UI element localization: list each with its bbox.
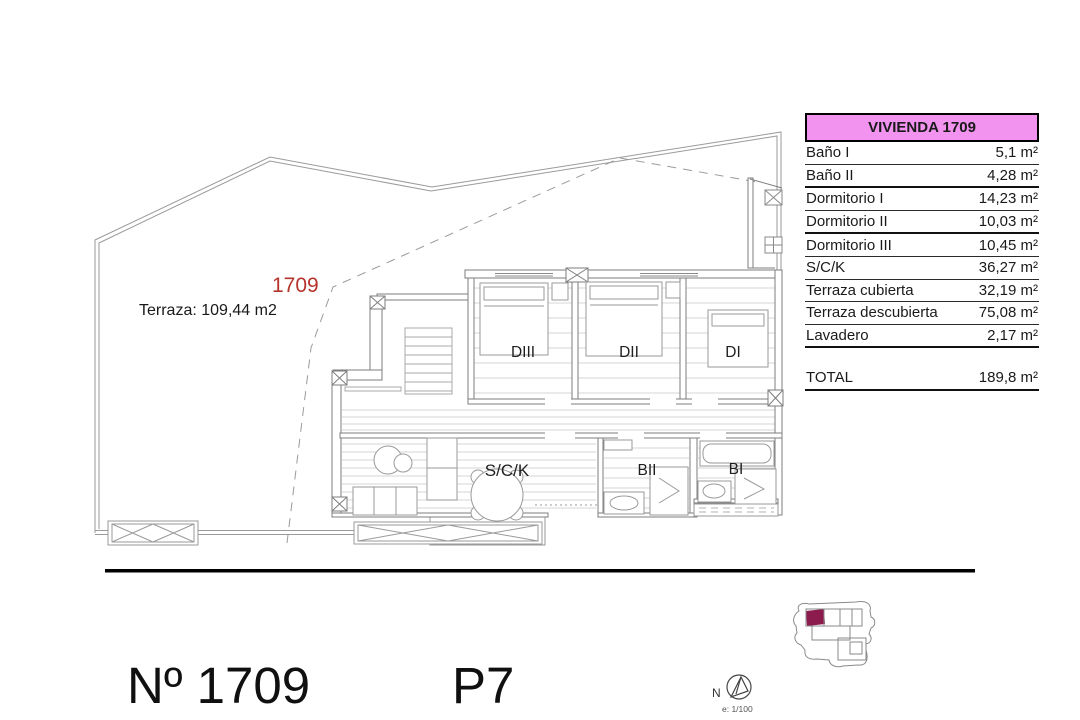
drawing-sheet: 1709 Terraza: 109,44 m2 DIII DII DI S/C/… [0,0,1080,720]
stairs [345,328,452,394]
area-table-row: Baño I 5,1 m² [805,142,1039,165]
room-label-bano-1: BI [729,461,744,479]
area-table-row: Dormitorio III 10,45 m² [805,234,1039,257]
terrace-area-label: Terraza: 109,44 m2 [139,302,277,320]
room-area: 32,19 m² [979,282,1038,299]
room-name: Lavadero [806,327,869,344]
area-table-row: Dormitorio II 10,03 m² [805,211,1039,235]
room-name: Baño II [806,167,854,184]
footer-floor-label: P7 [452,656,514,715]
room-area: 10,45 m² [979,237,1038,254]
room-name: Baño I [806,144,849,161]
room-area: 75,08 m² [979,304,1038,321]
key-plan [794,601,875,666]
room-label-dormitorio-1: DI [725,344,741,362]
terrace-planters [108,521,542,545]
area-table-total-row: TOTAL 189,8 m² [805,365,1039,391]
total-label: TOTAL [806,369,853,386]
room-name: Terraza cubierta [806,282,914,299]
scale-label: e: 1/100 [722,704,753,714]
area-table-row: S/C/K 36,27 m² [805,257,1039,280]
area-table-title: VIVIENDA 1709 [805,113,1039,142]
total-value: 189,8 m² [979,369,1038,386]
laundry-appliances [765,190,782,253]
room-label-salon-cocina: S/C/K [485,461,529,481]
room-area: 36,27 m² [979,259,1038,276]
room-name: Dormitorio I [806,190,884,207]
room-name: Dormitorio III [806,237,892,254]
room-label-dormitorio-3: DIII [511,344,535,362]
room-name: Terraza descubierta [806,304,938,321]
room-name: Dormitorio II [806,213,888,230]
room-area: 5,1 m² [995,144,1038,161]
footer-unit-number: Nº 1709 [127,656,310,715]
north-arrow-icon [727,675,751,699]
area-table-row: Terraza cubierta 32,19 m² [805,280,1039,303]
unit-number-label: 1709 [272,274,319,298]
area-table-row: Terraza descubierta 75,08 m² [805,302,1039,325]
room-label-bano-2: BII [638,462,657,480]
room-name: S/C/K [806,259,845,276]
separator-line [105,569,975,573]
room-area: 2,17 m² [987,327,1038,344]
room-area: 10,03 m² [979,213,1038,230]
room-area: 14,23 m² [979,190,1038,207]
compass-north-label: N [712,686,721,700]
room-label-dormitorio-2: DII [619,344,639,362]
stair-handrail [345,387,401,391]
sofa [353,487,417,515]
area-table-row: Baño II 4,28 m² [805,165,1039,189]
area-table-rows: Baño I 5,1 m² Baño II 4,28 m² Dormitorio… [805,142,1039,348]
key-plan-highlight [806,609,825,626]
bi-planter-strip [694,504,778,516]
area-table-row: Lavadero 2,17 m² [805,325,1039,349]
area-table-row: Dormitorio I 14,23 m² [805,188,1039,211]
room-area: 4,28 m² [987,167,1038,184]
area-table: VIVIENDA 1709 Baño I 5,1 m² Baño II 4,28… [805,113,1039,391]
